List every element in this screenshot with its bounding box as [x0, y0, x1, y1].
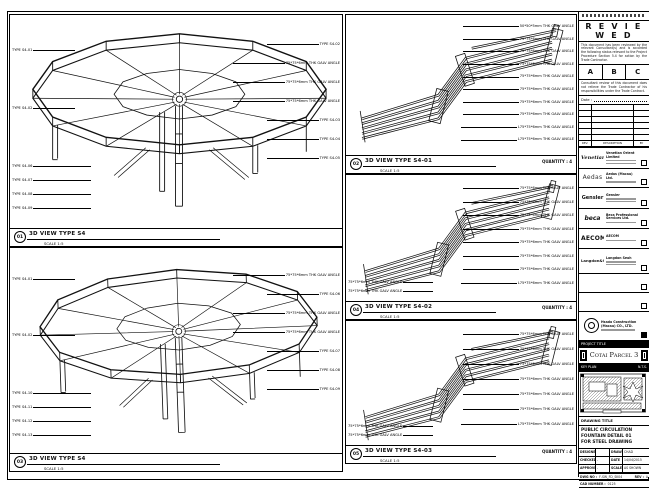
signature-table: DESIGNED DRAWN CHAD CHECKED - DATE 14/04…: [579, 449, 649, 474]
pillar-ornament-icon: [580, 350, 587, 361]
company-name: AECOM: [606, 235, 639, 239]
reviewed-body: This document has been reviewed by the r…: [579, 42, 649, 64]
quantity-label: QUANTITY : 4: [542, 449, 572, 454]
view-caption: 3D VIEW TYPE S4-02: [365, 304, 432, 310]
project-banner: Cotai Parcel 3: [579, 348, 649, 364]
cad-number-row: CAD NUMBER : 0125: [579, 481, 649, 488]
gensler-logo: Gensler: [581, 195, 604, 201]
company-name: Aedas (Macau) Ltd.: [606, 173, 639, 180]
date-value: 14/04/2015: [623, 457, 649, 465]
contractor-emblem-icon: [584, 318, 599, 333]
status-grade-b: B: [603, 65, 627, 79]
key-plan-label: KEY PLAN: [581, 365, 596, 369]
scale-value: AS SHOWN: [623, 465, 649, 473]
cad-number-value: 0125: [607, 481, 649, 487]
reviewed-stamp: R E V I E W E D This document has been r…: [579, 21, 649, 65]
aecom-logo: AECOM: [581, 235, 604, 242]
contractor-name-2: (Macau) CO., LTD.: [601, 325, 639, 329]
empty-consultant-block: [579, 293, 649, 312]
drawing-title-text: PUBLIC CIRCULATION FOUNTAIN DETAIL 01 FO…: [579, 426, 649, 449]
view-panel-type-s4-03: 75*75*6mm THK GALV ANGLE75*75*6mm THK GA…: [345, 320, 577, 464]
beca-logo: beca: [581, 215, 604, 222]
status-grade-row: A B C: [579, 65, 649, 80]
approval-checkbox: [641, 240, 647, 246]
consultant-block-langdon-seah: Langdon&Seah Langdon Seah: [579, 249, 649, 274]
approval-checkbox: [641, 303, 647, 309]
drawing-sheet: TYPE S4-01TYPE S4-02 TYPE S4-06TYPE S4-0…: [0, 0, 650, 488]
detail-bubble: 03: [14, 456, 26, 468]
approved-label: APPROVED: [579, 465, 596, 473]
view-scale: SCALE 1:5: [380, 168, 400, 173]
address-line: [606, 198, 636, 199]
view-caption: 3D VIEW TYPE S4-03: [365, 448, 432, 454]
view-panel-type-s4-top: TYPE S4-01TYPE S4-02 TYPE S4-06TYPE S4-0…: [9, 14, 343, 247]
company-name: Gensler: [606, 194, 639, 198]
pillar-ornament-icon: [641, 350, 648, 361]
drawing-title-label: DRAWING TITLE: [581, 419, 613, 423]
date-rule: [594, 97, 647, 102]
view-scale: SCALE 1:5: [44, 241, 64, 246]
approval-checkbox: [641, 265, 647, 271]
view-scale: SCALE 1:5: [44, 466, 64, 471]
detail-bubble: 02: [350, 158, 362, 170]
consultant-block-aedas: Aedas Aedas (Macau) Ltd.: [579, 169, 649, 188]
designed-value: [596, 449, 610, 457]
consultant-block-gensler: Gensler Gensler: [579, 188, 649, 209]
key-plan-header: KEY PLAN N.T.S.: [579, 364, 649, 372]
received-stamp-strip: [579, 12, 649, 21]
angle-assembly-drawing: [346, 175, 576, 302]
approved-value: -: [596, 465, 610, 473]
panel-footer: 02 3D VIEW TYPE S4-01 SCALE 1:5 QUANTITY…: [346, 155, 576, 173]
consultant-block-beca: beca Beca Professional Services Ltd.: [579, 209, 649, 229]
project-name: Cotai Parcel 3: [590, 351, 639, 359]
view-scale: SCALE 1:5: [380, 458, 400, 463]
address-line: [606, 240, 636, 241]
view-panel-type-s4-bottom: TYPE S4-01TYPE S4-02 TYPE S4-10TYPE S4-1…: [9, 247, 343, 472]
revision-grid: REV. DESCRIPTION BY: [579, 105, 649, 148]
scale-field-label: SCALE: [610, 465, 623, 473]
company-name: Beca Professional Services Ltd.: [606, 214, 639, 221]
empty-consultant-block: [579, 274, 649, 293]
dwg-no-label: DWG NO :: [579, 474, 598, 480]
canopy-drawing: [10, 15, 342, 229]
rev-col-header: REV.: [579, 141, 592, 147]
aedas-logo: Aedas: [581, 174, 604, 181]
address-line: [606, 201, 636, 202]
reviewed-title: R E V I E W E D: [579, 21, 649, 42]
date-field-label: DATE: [610, 457, 623, 465]
project-title-label: PROJECT TITLE: [581, 342, 606, 346]
detail-bubble: 01: [14, 231, 26, 243]
consultant-block-aecom: AECOM AECOM: [579, 229, 649, 249]
view-caption: 3D VIEW TYPE S4: [29, 456, 86, 462]
drawn-value: CHAD: [623, 449, 649, 457]
approval-checkbox: [641, 179, 647, 185]
approval-checkbox: [641, 220, 647, 226]
drawing-title-strip: DRAWING TITLE: [579, 417, 649, 426]
detail-bubble: 04: [350, 304, 362, 316]
address-line: [606, 163, 636, 164]
rev-label: REV :: [634, 474, 645, 480]
rev-value: A: [645, 474, 649, 480]
panel-footer: 01 3D VIEW TYPE S4 SCALE 1:5: [10, 228, 342, 246]
address-line: [606, 181, 636, 182]
view-scale: SCALE 1:5: [380, 314, 400, 319]
venetian-logo: Venetian: [581, 155, 604, 161]
address-line: [606, 222, 636, 223]
checked-label: CHECKED: [579, 457, 596, 465]
key-plan-thumbnail: [579, 372, 649, 417]
quantity-label: QUANTITY : 4: [542, 159, 572, 164]
title-block-column: R E V I E W E D This document has been r…: [578, 12, 649, 477]
microtext: [582, 14, 646, 17]
view-panel-type-s4-02: 75*75*6mm THK GALV ANGLE75*75*6mm THK GA…: [345, 174, 577, 320]
title-line-3: FOR STEEL DRAWING: [581, 440, 647, 446]
date-label: Date :: [581, 98, 592, 102]
view-caption: 3D VIEW TYPE S4: [29, 231, 86, 237]
stamp-date-line: Date :: [579, 96, 649, 105]
by-col-header: BY: [634, 141, 649, 147]
canopy-drawing: [10, 248, 342, 454]
langdon-seah-logo: Langdon&Seah: [581, 258, 604, 263]
stamp-note: Consultant review of this document does …: [579, 80, 649, 96]
view-caption: 3D VIEW TYPE S4-01: [365, 158, 432, 164]
company-name: Langdon Seah: [606, 257, 639, 261]
contractor-block: Hsada Construction (Macau) CO., LTD.: [579, 312, 649, 341]
address-line: [601, 329, 635, 330]
panel-footer: 03 3D VIEW TYPE S4 SCALE 1:5: [10, 453, 342, 471]
approval-checkbox: [641, 332, 647, 338]
description-col-header: DESCRIPTION: [592, 141, 634, 147]
angle-assembly-drawing: [346, 321, 576, 446]
view-panel-type-s4-01: 50*50*5mm THK GALV ANGLE75*75*6mm THK GA…: [345, 14, 577, 174]
panel-footer: 04 3D VIEW TYPE S4-02 SCALE 1:5 QUANTITY…: [346, 301, 576, 319]
dwg-no-value: F-SW_FD_SK04: [598, 474, 634, 480]
address-line: [606, 264, 636, 265]
status-grade-a: A: [579, 65, 603, 79]
cad-number-label: CAD NUMBER :: [579, 481, 607, 487]
dwg-no-row: DWG NO : F-SW_FD_SK04 REV : A: [579, 474, 649, 481]
address-line: [606, 160, 636, 161]
approval-checkbox: [641, 200, 647, 206]
panel-footer: 05 3D VIEW TYPE S4-03 SCALE 1:5 QUANTITY…: [346, 445, 576, 463]
consultant-block-venetian: Venetian Venetian Orient Limited: [579, 148, 649, 169]
checked-value: -: [596, 457, 610, 465]
drawn-label: DRAWN: [610, 449, 623, 457]
status-grade-c: C: [626, 65, 649, 79]
detail-bubble: 05: [350, 448, 362, 460]
address-line: [606, 261, 636, 262]
quantity-label: QUANTITY : 4: [542, 305, 572, 310]
designed-label: DESIGNED: [579, 449, 596, 457]
key-plan-scale: N.T.S.: [638, 365, 647, 369]
angle-assembly-drawing: [346, 15, 576, 156]
company-name: Venetian Orient Limited: [606, 152, 639, 159]
project-title-strip: PROJECT TITLE: [579, 341, 649, 348]
approval-checkbox: [641, 160, 647, 166]
approval-checkbox: [641, 284, 647, 290]
